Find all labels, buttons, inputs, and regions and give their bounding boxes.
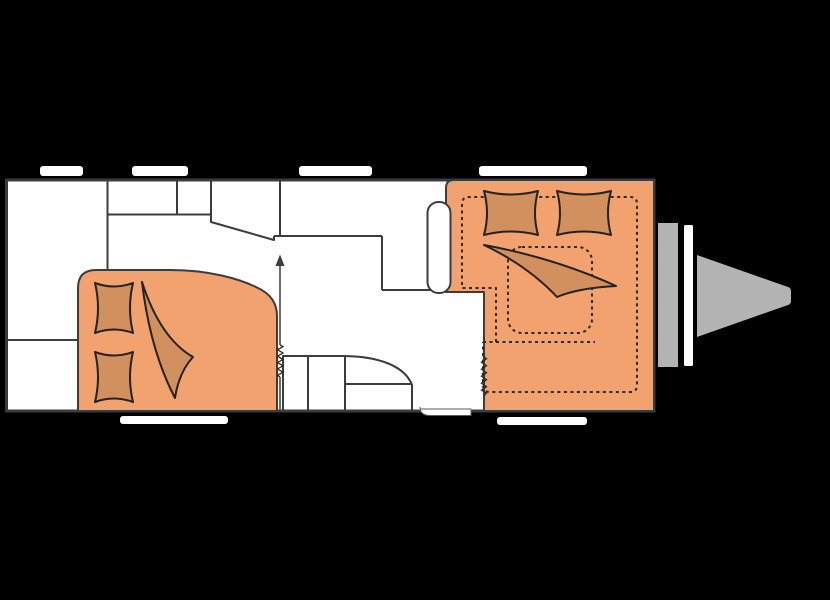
window-top-3 <box>299 166 372 176</box>
rear-bed-pillow-2 <box>95 352 133 402</box>
windows-top <box>40 166 587 176</box>
entry-door <box>419 402 472 416</box>
window-bottom-1 <box>120 416 228 424</box>
hitch-mount <box>658 223 678 367</box>
hitch-coupling <box>697 255 791 337</box>
floorplan-stage <box>0 0 830 600</box>
dinette-pillow-2 <box>557 191 611 235</box>
rear-bed-pillow-1 <box>95 283 133 333</box>
window-bottom-2 <box>497 417 587 425</box>
hitch-strip <box>684 225 693 366</box>
windows-bottom <box>120 416 587 425</box>
side-table <box>428 202 451 293</box>
caravan-floorplan <box>0 0 830 600</box>
window-top-2 <box>132 166 188 176</box>
dinette-pillow-1 <box>484 191 538 235</box>
window-top-4 <box>479 166 587 176</box>
hitch <box>658 223 791 367</box>
window-top-1 <box>40 166 83 176</box>
rear-bed <box>78 270 277 411</box>
